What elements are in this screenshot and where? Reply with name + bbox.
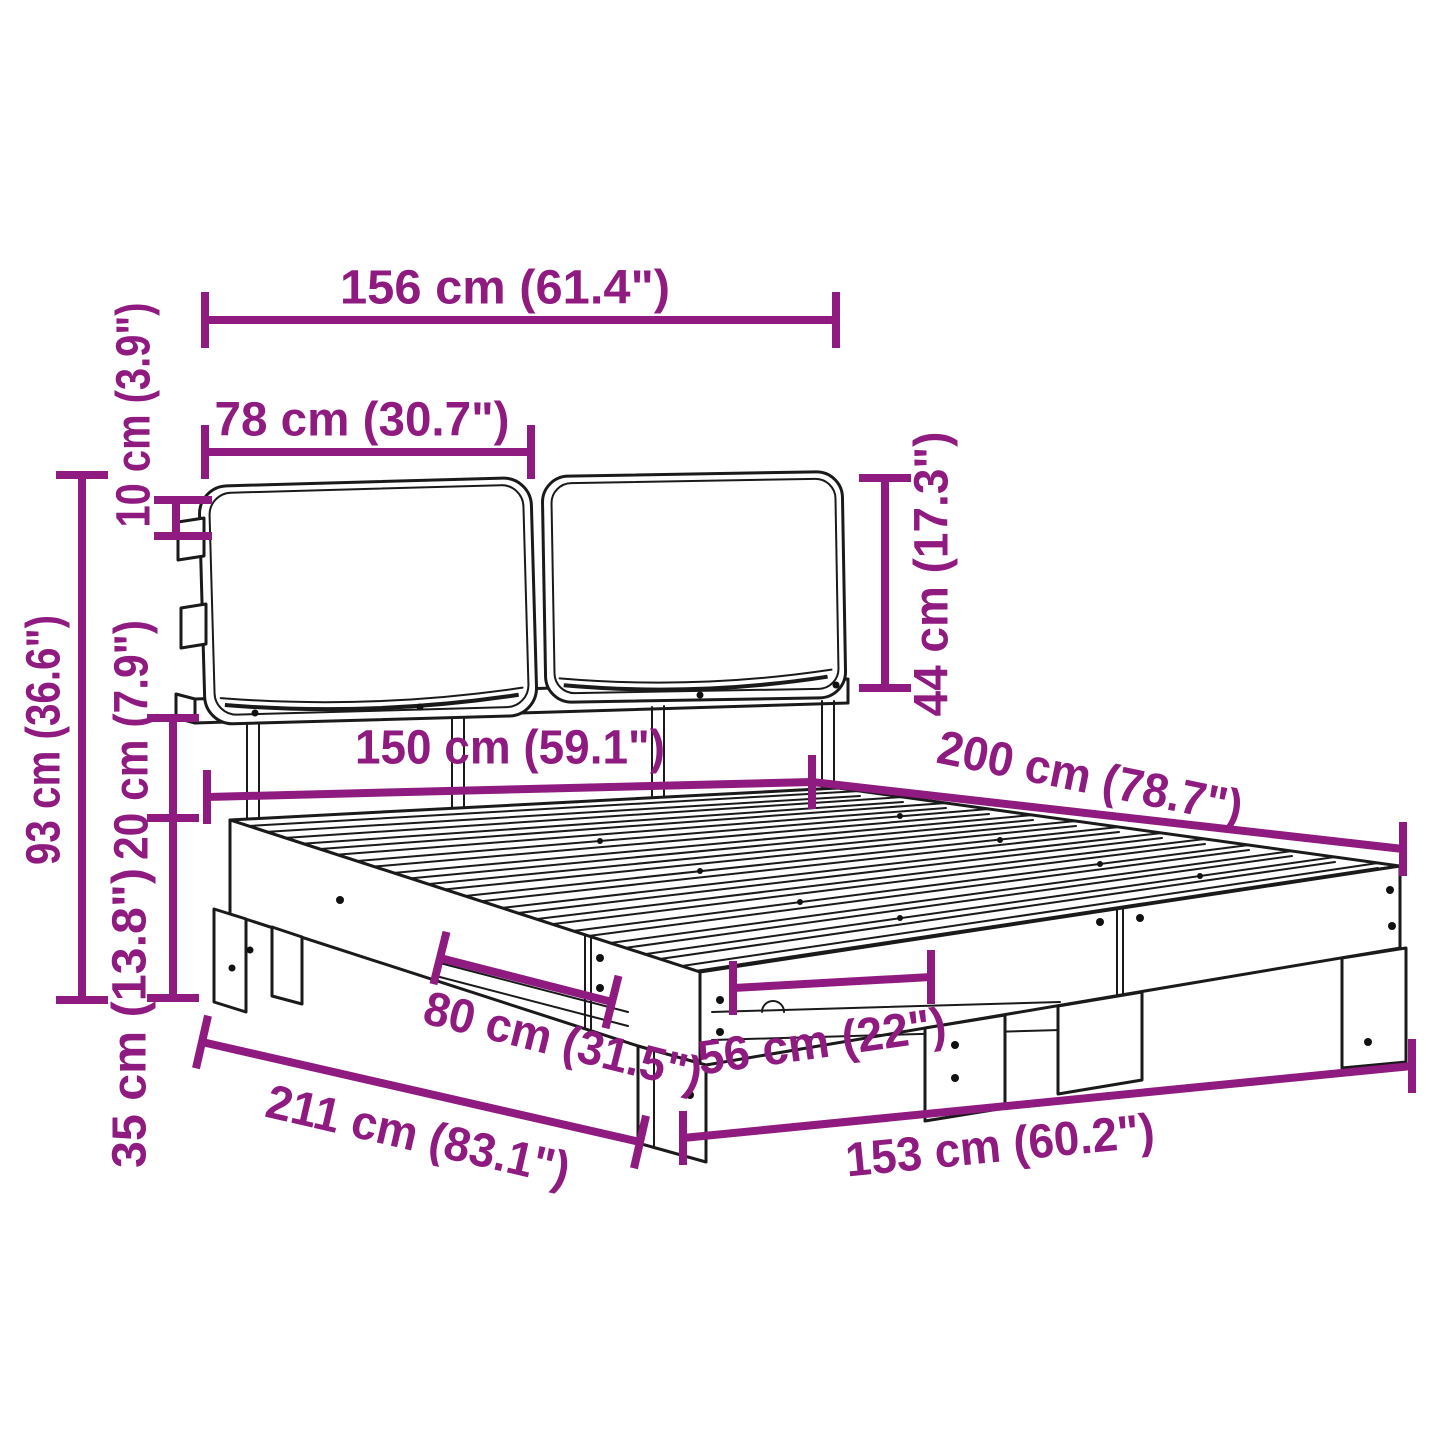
leg-rear-right <box>1342 948 1406 1068</box>
dimension-label-20cm: 20 cm (7.9") <box>106 620 159 860</box>
bed-frame-dimension-drawing: 156 cm (61.4") 78 cm (30.7") 10 cm (3.9"… <box>0 0 1445 1445</box>
dimension-label-35cm: 35 cm (13.8") <box>104 868 157 1168</box>
headboard-cushion-left <box>199 477 538 724</box>
dimension-under-bed-clearance: 35 cm (13.8") <box>104 818 200 1168</box>
dimension-cushion-thickness: 10 cm (3.9") <box>108 303 213 537</box>
dimension-label-10cm: 10 cm (3.9") <box>108 303 161 528</box>
dimension-headboard-total-width: 156 cm (61.4") <box>205 262 836 349</box>
dimension-diagram-canvas: 156 cm (61.4") 78 cm (30.7") 10 cm (3.9"… <box>0 0 1445 1445</box>
dimension-headboard-height: 93 cm (36.6") <box>18 475 109 1000</box>
dimension-cushion-width: 78 cm (30.7") <box>205 394 531 480</box>
dimension-cushion-height: 44 cm (17.3") <box>859 432 959 717</box>
headboard-cushion-right <box>542 471 846 702</box>
dimension-frame-rail-height: 20 cm (7.9") <box>106 620 200 860</box>
dimension-label-156cm: 156 cm (61.4") <box>340 262 670 315</box>
dimension-label-93cm: 93 cm (36.6") <box>18 615 71 865</box>
dimension-label-78cm: 78 cm (30.7") <box>215 394 510 447</box>
leg-foot-b <box>1058 992 1142 1094</box>
dimension-label-44cm: 44 cm (17.3") <box>906 432 959 717</box>
leg-head-left-front <box>214 909 246 1012</box>
leg-head-left-rear <box>272 927 302 1004</box>
dimension-label-150cm: 150 cm (59.1") <box>355 722 665 775</box>
